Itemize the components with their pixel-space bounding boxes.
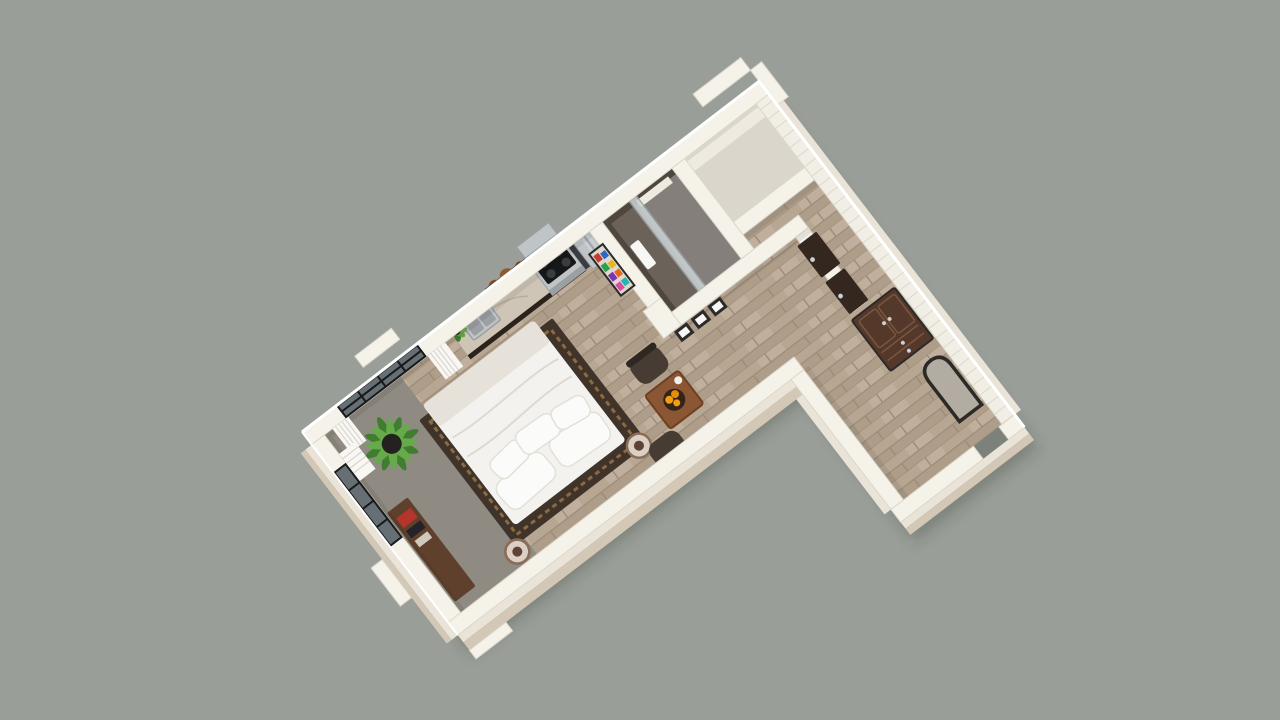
floorplan-render — [0, 0, 1280, 720]
scene-canvas — [0, 0, 1280, 720]
